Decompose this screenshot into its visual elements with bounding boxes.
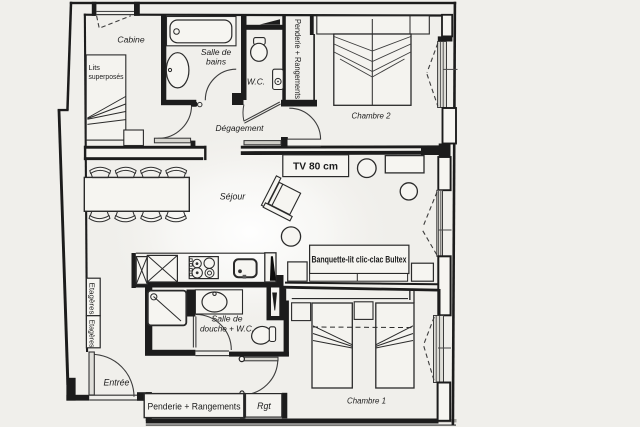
svg-text:superposés: superposés	[89, 72, 124, 81]
svg-text:Entrée: Entrée	[104, 378, 130, 388]
svg-text:Lits: Lits	[89, 63, 101, 72]
svg-text:Séjour: Séjour	[220, 192, 246, 202]
svg-text:Penderie + Rangements: Penderie + Rangements	[293, 19, 302, 99]
svg-text:Penderie + Rangements: Penderie + Rangements	[148, 401, 241, 412]
svg-text:Rgt: Rgt	[257, 401, 271, 411]
svg-text:Salle de: Salle de	[201, 47, 232, 57]
svg-text:Dégagement: Dégagement	[216, 123, 265, 133]
svg-text:W.C.: W.C.	[247, 77, 265, 87]
svg-text:Cabine: Cabine	[117, 35, 144, 45]
svg-text:bains: bains	[206, 57, 227, 67]
svg-text:Salle de: Salle de	[212, 314, 243, 324]
svg-text:TV 80 cm: TV 80 cm	[293, 162, 338, 173]
svg-text:Chambre 2: Chambre 2	[352, 111, 391, 121]
svg-text:Etagères: Etagères	[88, 320, 97, 348]
svg-text:Banquette-lit clic-clac Bultex: Banquette-lit clic-clac Bultex	[312, 255, 407, 266]
svg-text:douche + W.C.: douche + W.C.	[200, 324, 254, 334]
svg-text:Etagères: Etagères	[88, 283, 97, 315]
svg-text:Chambre 1: Chambre 1	[347, 396, 386, 406]
